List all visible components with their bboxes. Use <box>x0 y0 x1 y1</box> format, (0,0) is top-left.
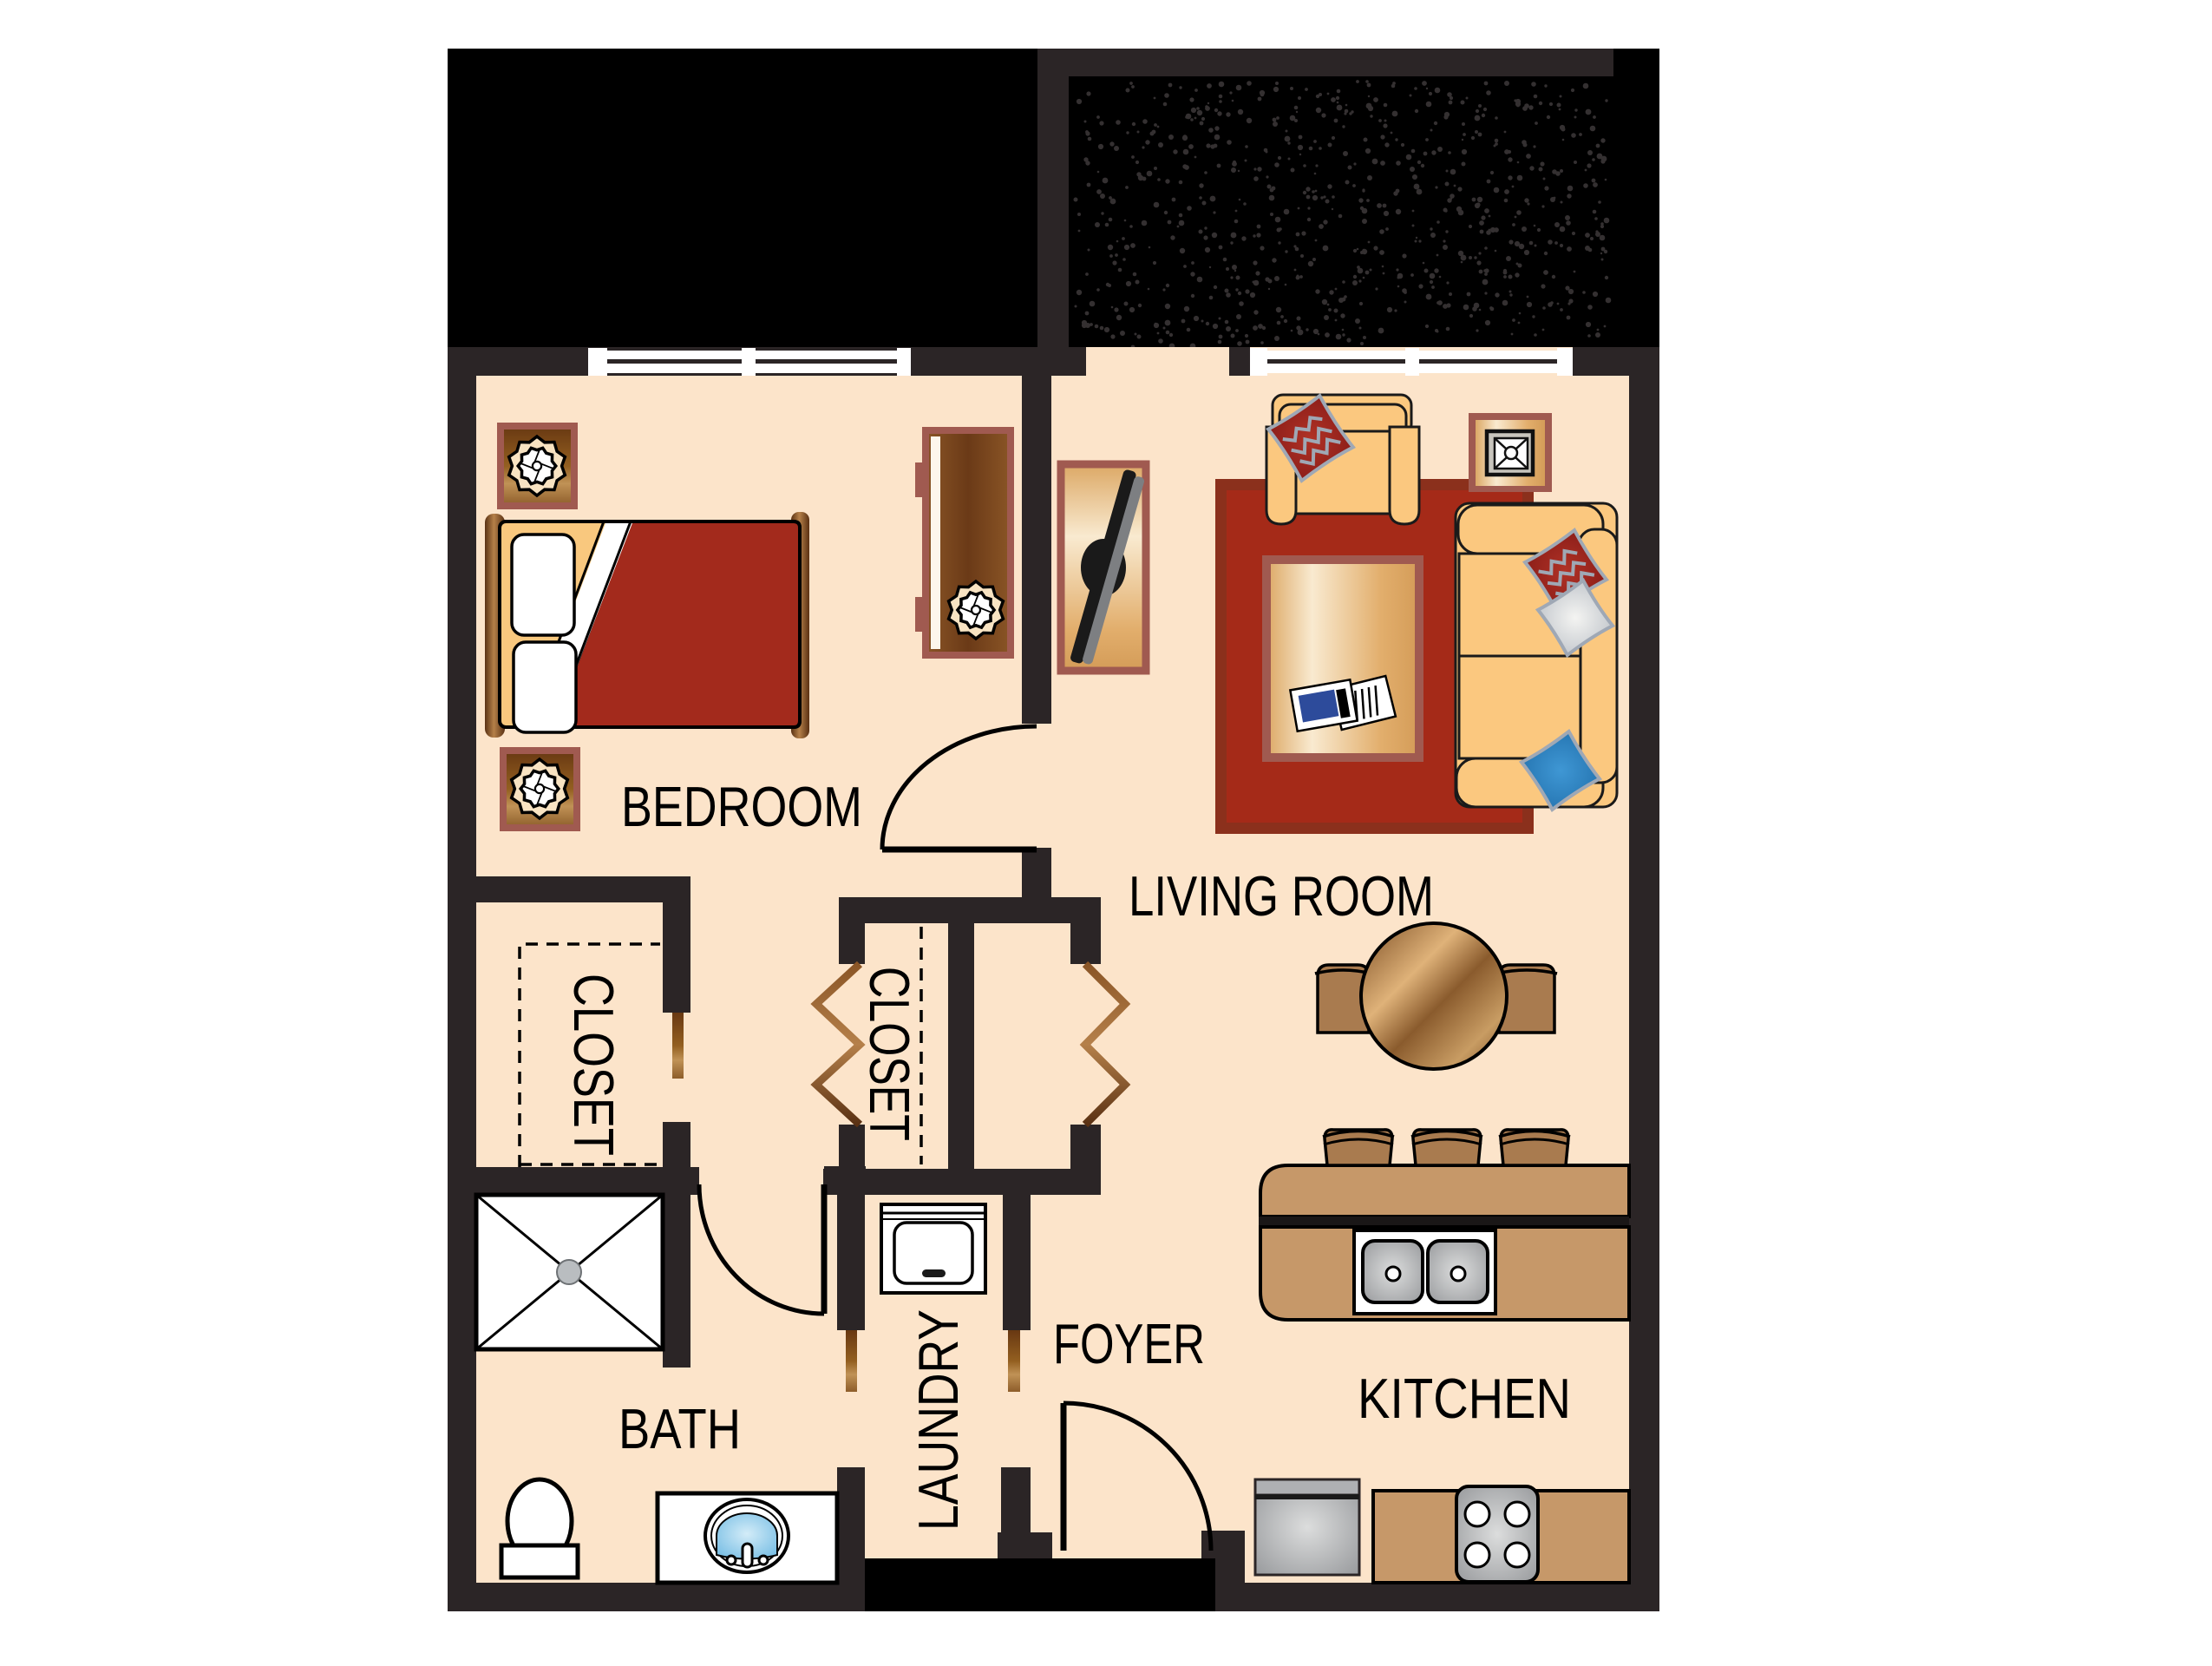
svg-text:CLOSET: CLOSET <box>562 974 625 1156</box>
svg-text:BATH: BATH <box>618 1397 741 1460</box>
svg-text:KITCHEN: KITCHEN <box>1358 1367 1571 1430</box>
svg-text:LIVING ROOM: LIVING ROOM <box>1129 864 1434 928</box>
svg-text:BEDROOM: BEDROOM <box>621 775 862 838</box>
svg-text:FOYER: FOYER <box>1053 1312 1205 1375</box>
svg-text:CLOSET: CLOSET <box>858 967 921 1141</box>
svg-text:LAUNDRY: LAUNDRY <box>906 1309 970 1531</box>
